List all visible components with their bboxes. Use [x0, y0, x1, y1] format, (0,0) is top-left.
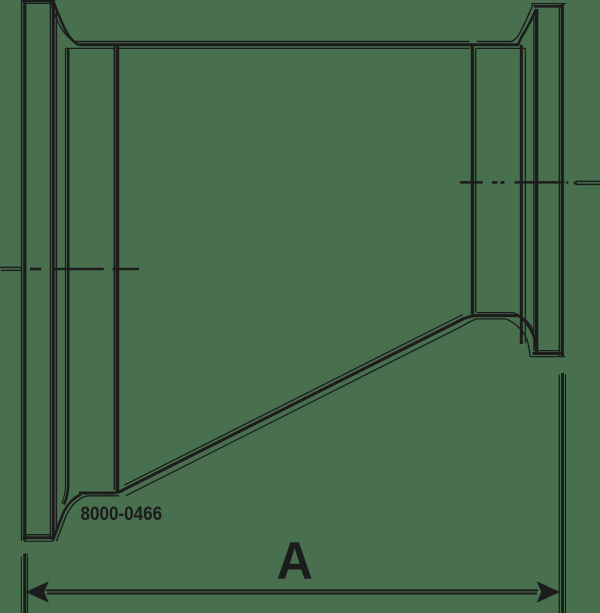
svg-text:A: A	[277, 531, 313, 590]
svg-text:8000-0466: 8000-0466	[81, 502, 163, 524]
